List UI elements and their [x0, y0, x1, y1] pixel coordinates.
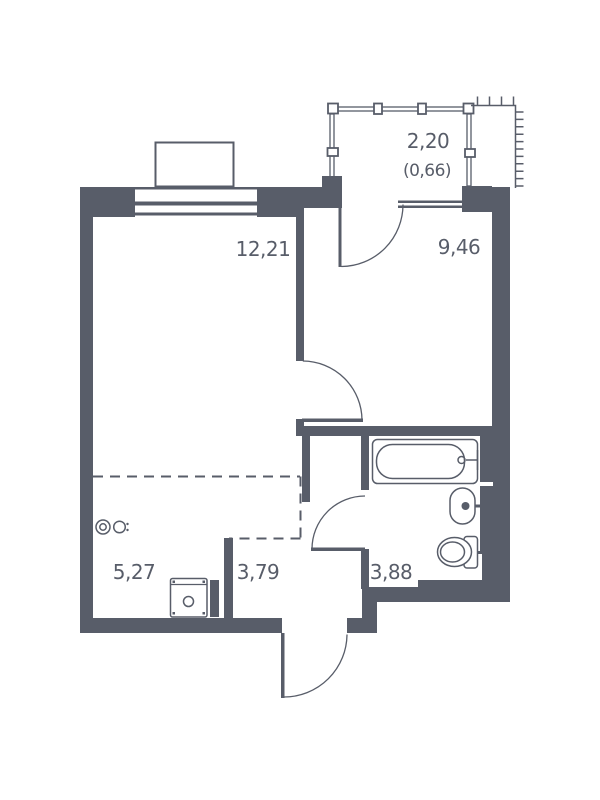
wall-kitchen-right-pier [462, 186, 492, 212]
balcony-railing [322, 104, 475, 189]
bathroom-door [311, 496, 365, 551]
wall-bathroom-left-lower [361, 549, 369, 589]
wall-outer-left [80, 187, 93, 633]
neighbor-structure-hatch [471, 97, 524, 189]
wall-washer-niche [210, 580, 219, 617]
wall-outer-right [492, 187, 510, 602]
railing-post [418, 104, 426, 115]
room-label-hall: 3,79 [237, 560, 280, 584]
railing-post [328, 148, 339, 156]
room-label-living: 12,21 [236, 237, 291, 261]
sink-icon [450, 488, 482, 524]
living-room-door [302, 361, 363, 422]
wall-storage-hall [224, 538, 233, 620]
wall-bottom-left [80, 618, 282, 633]
floor-plan-svg: 12,21 9,46 2,20 (0,66) 5,27 3,79 3,88 [0, 0, 600, 800]
window-kitchen [398, 201, 463, 209]
room-label-kitchen: 9,46 [438, 235, 481, 259]
wall-corridor [302, 436, 310, 502]
railing-post [328, 104, 338, 114]
wall-kitchen-top [303, 187, 342, 208]
entry-door [281, 633, 347, 698]
room-label-balcony: 2,20 [407, 129, 450, 153]
wall-kitchen-bathroom [296, 426, 493, 436]
bathtub-icon [373, 440, 478, 484]
floor-plan: 12,21 9,46 2,20 (0,66) 5,27 3,79 3,88 [0, 0, 600, 800]
balcony-door [339, 204, 404, 267]
wall-bottom-right [347, 618, 377, 633]
railing-post [374, 104, 382, 115]
room-label-storage: 5,27 [113, 560, 156, 584]
wall-outlets-icon [96, 520, 129, 534]
bay-ledge [156, 143, 234, 187]
room-label-balcony-secondary: (0,66) [403, 161, 451, 181]
room-label-bathroom: 3,88 [370, 560, 413, 584]
wall-living-kitchen [296, 208, 304, 361]
wall-bathroom-bottom [362, 587, 510, 602]
washing-machine-icon [171, 579, 208, 618]
window-living [135, 187, 257, 216]
tub-faucet-icon [458, 450, 478, 470]
toilet-icon [438, 537, 483, 569]
wall-bathroom-bottom-ledge [418, 580, 493, 588]
wall-bathroom-left-upper [361, 436, 369, 490]
railing-post [465, 149, 475, 157]
